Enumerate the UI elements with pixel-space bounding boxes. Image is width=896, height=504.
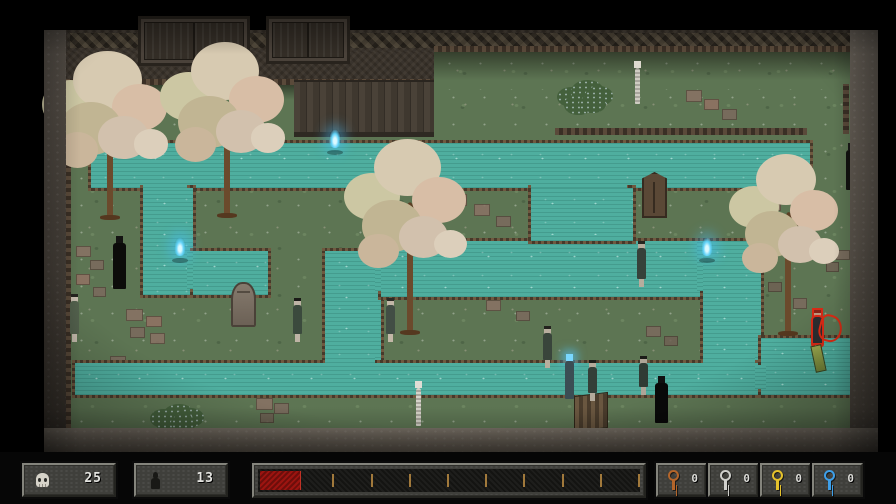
path-tile (496, 216, 511, 227)
progress-tick (600, 474, 602, 487)
gate-panel-left (144, 22, 194, 60)
progress-tick (485, 474, 487, 487)
progress-bar (252, 463, 646, 498)
path-tile (76, 246, 91, 257)
tree-roots (217, 213, 237, 218)
flower-bush (144, 402, 190, 429)
silver-key-icon (719, 470, 731, 490)
person-icon (151, 478, 160, 489)
tree-foliage (175, 127, 216, 162)
path-tile (93, 287, 106, 297)
brick-edging (555, 128, 807, 135)
skeleton[interactable] (412, 381, 425, 426)
tree-foliage (134, 129, 169, 158)
character-body (637, 248, 646, 279)
gold-key-icon (771, 470, 783, 490)
bottom-wall (44, 428, 878, 452)
cherry-tree (170, 58, 284, 218)
path-tile (130, 327, 145, 338)
progress-tick (409, 474, 411, 487)
figure-count: 13 (196, 471, 214, 486)
character-legs (639, 279, 644, 287)
cherry-tree (52, 68, 167, 220)
gate-panel-left (272, 22, 308, 58)
character-head (566, 354, 573, 361)
water-channel (325, 357, 375, 363)
progress-tick (332, 474, 334, 487)
blue-wisp[interactable] (701, 237, 713, 256)
skull-count: 25 (84, 471, 102, 486)
tree-roots (100, 215, 120, 220)
progress-tick (562, 474, 564, 487)
character-body (113, 243, 126, 289)
tree-roots (400, 330, 420, 335)
character-body (639, 363, 648, 387)
progress-tick (371, 474, 373, 487)
copper-key-icon (667, 470, 679, 490)
tree-foliage (358, 234, 398, 268)
gold-key-panel: 0 (760, 463, 811, 497)
character-head (415, 381, 422, 388)
ghost-girl[interactable] (586, 360, 598, 401)
character-body (635, 68, 640, 104)
path-tile (516, 311, 530, 321)
character-body (543, 333, 552, 360)
bush-foliage (579, 95, 606, 114)
path-tile (704, 99, 719, 110)
key-count: 0 (743, 472, 750, 485)
water-channel (531, 182, 627, 188)
skeleton[interactable] (631, 61, 643, 104)
blue-key-panel: 0 (812, 463, 863, 497)
villager[interactable] (635, 241, 648, 287)
character-legs (295, 334, 300, 342)
path-tile (274, 403, 289, 414)
character-legs (72, 334, 77, 342)
tree-foliage (809, 238, 839, 264)
character-legs (545, 360, 550, 368)
path-tile (646, 326, 661, 337)
character-legs (388, 334, 393, 342)
gate-panel-right (308, 22, 344, 58)
hud-bar: 25 13 0000 (0, 452, 896, 504)
path-tile (126, 309, 143, 321)
path-tile (150, 333, 165, 344)
water-channel (187, 251, 193, 289)
game-viewport[interactable] (0, 0, 896, 452)
progress-tick (447, 474, 449, 487)
blue-wisp[interactable] (174, 237, 186, 256)
path-tile (474, 204, 490, 216)
left-wall (44, 30, 66, 452)
character-body (588, 367, 597, 393)
cherry-tree (354, 153, 466, 335)
wood-fence (294, 80, 434, 137)
tree-roots (778, 331, 798, 336)
brick-edging (843, 84, 849, 134)
progress-fill (260, 471, 301, 490)
brick-edging (434, 46, 850, 52)
progress-track (258, 469, 640, 492)
blue-flame-figure[interactable] (563, 354, 576, 399)
game-window: 25 13 0000 (0, 0, 896, 504)
gravestone[interactable] (231, 282, 256, 327)
key-count: 0 (795, 472, 802, 485)
progress-tick (638, 474, 640, 487)
character-body (655, 383, 668, 423)
key-count: 0 (847, 472, 854, 485)
right-wall (850, 30, 878, 452)
path-tile (686, 90, 702, 102)
dark-figure[interactable] (112, 236, 127, 289)
wood-door[interactable] (642, 172, 667, 218)
copper-key-panel: 0 (656, 463, 707, 497)
path-tile (90, 260, 104, 270)
skull-counter: 25 (22, 463, 116, 497)
water-channel (755, 365, 766, 389)
blue-wisp[interactable] (329, 129, 341, 148)
character-legs (641, 387, 646, 395)
path-tile (260, 413, 274, 423)
water-channel (531, 235, 627, 241)
character-head (116, 236, 123, 243)
skull-icon (36, 473, 49, 487)
path-tile (486, 300, 501, 311)
path-tile (722, 109, 737, 120)
key-count: 0 (691, 472, 698, 485)
progress-tick (523, 474, 525, 487)
water-channel (190, 248, 271, 298)
path-tile (256, 398, 273, 410)
water-channel (703, 357, 755, 363)
tree-foliage (251, 123, 285, 152)
character-body (70, 301, 79, 334)
ghost-girl[interactable] (638, 356, 649, 395)
character-body (565, 361, 574, 399)
path-tile (146, 316, 162, 327)
character-body (293, 305, 302, 334)
ghost-girl[interactable] (291, 298, 304, 342)
flower-bush (551, 77, 599, 116)
tree-foliage (742, 243, 778, 274)
path-tile (664, 336, 678, 346)
villager[interactable] (541, 326, 553, 368)
silver-key-panel: 0 (708, 463, 759, 497)
cherry-tree (738, 166, 838, 336)
tree-foliage (790, 190, 838, 231)
character-legs (590, 393, 595, 401)
dark-figure[interactable] (654, 376, 669, 423)
character-head (658, 376, 665, 383)
character-body (416, 388, 421, 426)
character-head (634, 61, 641, 68)
blue-key-icon (823, 470, 835, 490)
ghost-girl[interactable] (68, 294, 80, 342)
gate-door (266, 16, 350, 64)
path-tile (76, 274, 90, 285)
tree-foliage (434, 230, 468, 259)
figure-counter: 13 (134, 463, 228, 497)
